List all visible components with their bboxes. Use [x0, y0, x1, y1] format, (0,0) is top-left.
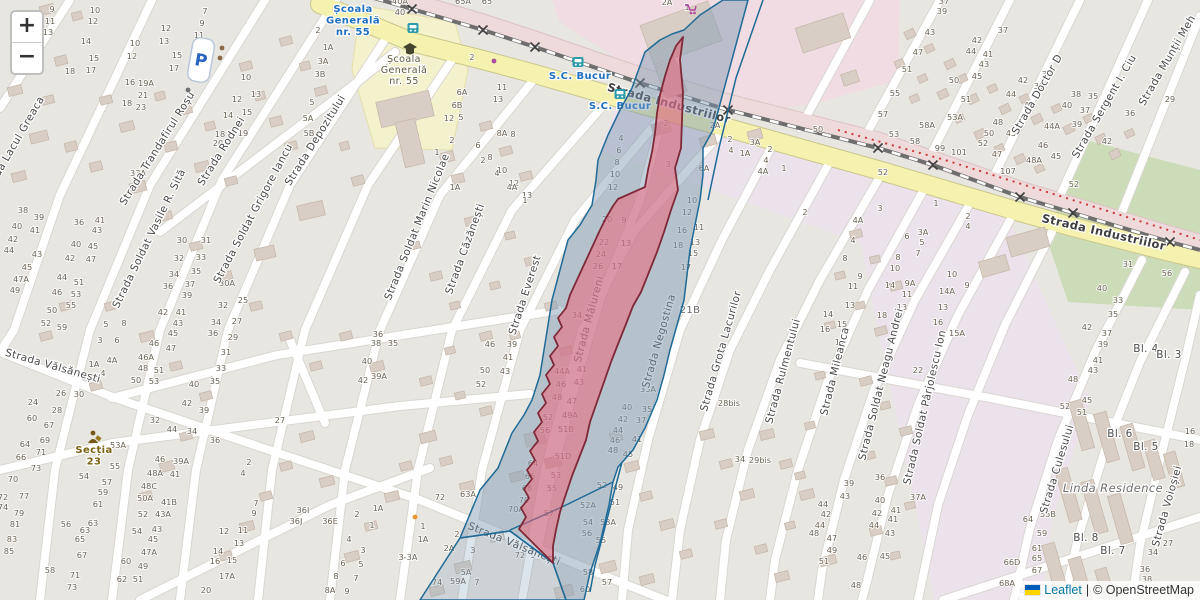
house-number: 23: [136, 102, 146, 112]
house-number: 6: [340, 558, 345, 568]
house-number: 50: [480, 365, 490, 375]
house-number: 2: [965, 211, 970, 221]
house-number: 4A: [853, 215, 864, 225]
house-number: 47A: [13, 274, 29, 284]
house-number: 8A: [325, 585, 336, 595]
poi-dot-icon: [218, 56, 223, 61]
house-number: 4A: [507, 182, 518, 192]
house-number: 67: [44, 420, 54, 430]
house-number: 39: [34, 212, 44, 222]
house-number: 12: [444, 113, 454, 123]
house-number: 33: [216, 363, 226, 373]
house-number: 1: [933, 198, 938, 208]
house-number: 1A: [418, 534, 429, 544]
house-number: 3B: [315, 69, 326, 79]
house-number: 31: [1123, 259, 1133, 269]
house-number: 65: [1032, 553, 1042, 563]
house-number: 59: [1037, 528, 1047, 538]
house-number: 4: [965, 221, 970, 231]
house-number: 58: [910, 136, 920, 146]
house-number: 42: [182, 398, 192, 408]
house-number: 4A: [758, 166, 769, 176]
house-number: 46: [857, 552, 867, 562]
house-number: 19A: [138, 78, 154, 88]
house-number: 44: [869, 520, 879, 530]
house-number: 14: [223, 110, 233, 120]
house-number: 50: [813, 124, 823, 134]
house-number: 36: [1140, 564, 1150, 574]
house-number: 64: [20, 439, 30, 449]
house-number: 40: [189, 379, 199, 389]
house-number: 42: [1082, 322, 1092, 332]
house-number: 15A: [949, 328, 965, 338]
house-number: 57: [602, 577, 612, 587]
map-viewport[interactable]: 9111310121415171810121619A21231833A12131…: [0, 0, 1200, 600]
house-number: 10: [947, 269, 957, 279]
house-number: 43: [500, 366, 510, 376]
house-number: 35: [210, 376, 220, 386]
house-number: 72: [435, 492, 445, 502]
house-number: 3: [877, 203, 882, 213]
house-number: 40: [395, 7, 405, 17]
house-number: 43: [840, 491, 850, 501]
house-number: 7: [915, 248, 920, 258]
house-number: 29: [1165, 94, 1175, 104]
house-number: 28: [52, 405, 62, 415]
house-number: 46: [485, 339, 495, 349]
house-number: 34: [169, 269, 179, 279]
house-number: 2: [354, 509, 359, 519]
house-number: 45: [1082, 395, 1092, 405]
house-number: 52: [1069, 179, 1079, 189]
house-number: 48A: [147, 468, 163, 478]
house-number: 6: [114, 335, 119, 345]
house-number: 53: [889, 129, 899, 139]
house-number: 83: [7, 534, 17, 544]
house-number: 32: [150, 415, 160, 425]
house-number: 42: [158, 307, 168, 317]
house-number: 10: [241, 72, 251, 82]
house-number: 8: [842, 253, 847, 263]
building: [339, 141, 350, 151]
map-label: Bl. 7: [1100, 545, 1125, 557]
house-number: 14: [81, 36, 91, 46]
house-number: 8: [895, 252, 900, 262]
house-number: 40A: [392, 0, 408, 6]
house-number: 44: [167, 424, 177, 434]
osm-link[interactable]: © OpenStreetMap: [1093, 583, 1194, 597]
house-number: 79: [14, 508, 24, 518]
house-number: 99: [935, 143, 945, 153]
house-number: 42: [972, 35, 982, 45]
house-number: 2: [246, 457, 251, 467]
house-number: 52: [476, 379, 486, 389]
house-number: 35: [1108, 309, 1118, 319]
map-label: S.C. Bucur: [549, 71, 611, 82]
zoom-control: + −: [10, 10, 44, 75]
map-label: Linda Residence: [1063, 481, 1163, 495]
house-number: 36I: [297, 505, 310, 515]
house-number: 42: [358, 375, 368, 385]
house-number: 47: [166, 343, 176, 353]
house-number: 3A: [750, 137, 761, 147]
house-number: 28bis: [718, 398, 740, 408]
house-number: 54: [79, 471, 89, 481]
house-number: 34: [735, 454, 745, 464]
leaflet-link[interactable]: Leaflet: [1044, 583, 1082, 597]
house-number: 1: [369, 520, 374, 530]
house-number: 17: [86, 65, 96, 75]
attribution-separator: |: [1086, 583, 1089, 597]
house-number: 39: [182, 290, 192, 300]
house-number: 57: [102, 477, 112, 487]
house-number: 36J: [290, 516, 303, 526]
house-number: 2: [454, 529, 459, 539]
house-number: 11: [238, 525, 248, 535]
map-label: Bl. 6: [1107, 428, 1132, 440]
map-canvas[interactable]: 9111310121415171810121619A21231833A12131…: [0, 0, 1200, 600]
house-number: 15: [227, 555, 237, 565]
house-number: 39A: [173, 456, 189, 466]
house-number: 48: [138, 363, 148, 373]
house-number: 85: [4, 546, 14, 556]
house-number: 8: [510, 129, 515, 139]
house-number: 15: [172, 50, 182, 60]
house-number: 15: [89, 53, 99, 63]
house-number: 16: [820, 324, 830, 334]
house-number: 5: [358, 559, 363, 569]
house-number: 51: [1077, 407, 1087, 417]
house-number: 7: [353, 573, 358, 583]
house-number: 1A: [740, 148, 751, 158]
house-number: 13: [234, 538, 244, 548]
house-number: 81: [10, 519, 20, 529]
house-number: 41B: [161, 497, 177, 507]
attribution-bar: Leaflet|© OpenStreetMap: [1019, 581, 1200, 600]
house-number: 41: [503, 352, 513, 362]
house-number: 63A: [460, 489, 476, 499]
zoom-in-button[interactable]: +: [12, 12, 42, 43]
house-number: 52: [878, 167, 888, 177]
house-number: 36: [208, 328, 218, 338]
house-number: 30: [177, 235, 187, 245]
house-number: 41: [983, 49, 993, 59]
house-number: 107: [1000, 166, 1016, 176]
house-number: 58A: [919, 120, 935, 130]
house-number: 38: [371, 338, 381, 348]
house-number: 27: [1163, 538, 1173, 548]
house-number: 2: [767, 144, 772, 154]
house-number: 52: [1060, 401, 1070, 411]
house-number: 18: [122, 98, 132, 108]
house-number: 2: [727, 134, 732, 144]
house-number: 67: [77, 550, 87, 560]
house-number: 61: [93, 499, 103, 509]
house-number: 46A: [138, 352, 154, 362]
house-number: 13: [43, 27, 53, 37]
house-number: 36: [875, 472, 885, 482]
house-number: 36: [163, 281, 173, 291]
house-number: 9: [964, 280, 969, 290]
house-number: 44: [966, 46, 976, 56]
house-number: 7: [202, 6, 207, 16]
house-number: 48A: [1026, 155, 1042, 165]
house-number: 4: [728, 145, 733, 155]
house-number: 12: [127, 51, 137, 61]
house-number: 29: [228, 332, 238, 342]
house-number: 45: [148, 534, 158, 544]
house-number: 4: [240, 468, 245, 478]
house-number: 74: [0, 502, 8, 512]
house-number: 18: [1184, 439, 1194, 449]
house-number: 37: [1102, 328, 1112, 338]
house-number: 48: [851, 580, 861, 590]
house-number: 40: [1097, 283, 1107, 293]
house-number: 6: [904, 231, 909, 241]
house-number: 2: [802, 207, 807, 217]
house-number: 65: [482, 0, 492, 6]
house-number: 101: [951, 147, 967, 157]
house-number: 50: [131, 375, 141, 385]
house-number: 8: [487, 152, 492, 162]
house-number: 43: [92, 225, 102, 235]
house-number: 34: [1148, 547, 1158, 557]
house-number: 45: [880, 551, 890, 561]
house-number: 53A: [947, 112, 963, 122]
house-number: 64: [1023, 514, 1033, 524]
map-label: Bl. 3: [1156, 349, 1181, 361]
house-number: 41: [888, 514, 898, 524]
house-number: 11: [902, 289, 912, 299]
house-number: 13: [845, 300, 855, 310]
house-number: 47: [827, 533, 837, 543]
house-number: 43: [885, 528, 895, 538]
house-number: 3A: [318, 56, 329, 66]
house-number: 40: [875, 495, 885, 505]
house-number: 43: [32, 249, 42, 259]
house-number: 51: [74, 277, 84, 287]
house-number: 24: [28, 397, 38, 407]
house-number: 10: [90, 5, 100, 15]
house-number: 51: [902, 64, 912, 74]
house-number: 37: [1080, 105, 1090, 115]
house-number: 36E: [322, 516, 338, 526]
house-number: 34: [187, 426, 197, 436]
house-number: 35: [1088, 91, 1098, 101]
house-number: 39: [1072, 119, 1082, 129]
house-number: 1A: [373, 503, 384, 513]
house-number: 1A: [323, 42, 334, 52]
house-number: 2: [469, 52, 474, 62]
house-number: 16: [933, 317, 943, 327]
house-number: 37: [185, 279, 195, 289]
house-number: 68A: [999, 578, 1015, 588]
house-number: 10: [130, 38, 140, 48]
house-number: 6A: [457, 87, 468, 97]
house-number: 8: [333, 571, 338, 581]
house-number: 14A: [939, 286, 955, 296]
house-number: 44: [1006, 89, 1016, 99]
house-number: 1A: [89, 359, 100, 369]
house-number: 3A: [918, 227, 929, 237]
house-number: 32: [218, 300, 228, 310]
house-number: 43: [979, 59, 989, 69]
house-number: 42: [1018, 75, 1028, 85]
house-number: 31: [221, 347, 231, 357]
house-number: 52: [41, 318, 51, 328]
house-number: 46: [149, 338, 159, 348]
house-number: 49: [138, 561, 148, 571]
house-number: 55: [66, 300, 76, 310]
house-number: 56: [61, 519, 71, 529]
house-number: 47: [992, 149, 1002, 159]
house-number: 18: [65, 66, 75, 76]
house-number: 71: [70, 570, 80, 580]
house-number: 39: [844, 478, 854, 488]
house-number: 4: [494, 168, 499, 178]
house-number: 3-3A: [399, 552, 418, 562]
house-number: 30: [74, 389, 84, 399]
house-number: 63: [88, 518, 98, 528]
house-number: 39: [1098, 339, 1108, 349]
house-number: 4: [346, 534, 351, 544]
house-number: 4A: [107, 355, 118, 365]
house-number: 70: [8, 474, 18, 484]
house-number: 58: [45, 565, 55, 575]
house-number: 48: [809, 528, 819, 538]
bus-stop-icon: [408, 23, 419, 33]
house-number: 12: [219, 526, 229, 536]
house-number: 10: [890, 263, 900, 273]
house-number: 59: [57, 322, 67, 332]
house-number: 50: [984, 128, 994, 138]
house-number: 61: [1032, 543, 1042, 553]
house-number: 22: [913, 365, 923, 375]
house-number: 2A: [662, 0, 673, 7]
house-number: 46: [155, 454, 165, 464]
house-number: 71: [36, 447, 46, 457]
house-number: 51: [819, 556, 829, 566]
house-number: 9: [344, 586, 349, 596]
house-number: 38: [18, 205, 28, 215]
house-number: 48: [993, 117, 1003, 127]
house-number: 37: [998, 25, 1008, 35]
house-number: 3: [360, 545, 365, 555]
house-number: 31: [201, 235, 211, 245]
house-number: 49: [10, 285, 20, 295]
house-number: 49: [827, 545, 837, 555]
house-number: 45: [88, 241, 98, 251]
house-number: 21: [138, 90, 148, 100]
house-number: 11: [848, 281, 858, 291]
house-number: 50: [949, 75, 959, 85]
house-number: 43: [152, 524, 162, 534]
house-number: 35: [388, 338, 398, 348]
house-number: 43A: [155, 509, 171, 519]
house-number: 13: [159, 36, 169, 46]
house-number: 12: [232, 94, 242, 104]
house-number: 1A: [450, 182, 461, 192]
house-number: 42: [8, 234, 18, 244]
map-label: Bl. 8: [1073, 532, 1098, 544]
house-number: 44: [57, 272, 67, 282]
house-number: 41: [176, 307, 186, 317]
house-number: 13: [251, 89, 261, 99]
house-number: 46: [52, 287, 62, 297]
house-number: 9A: [905, 278, 916, 288]
house-number: 5: [919, 237, 924, 247]
house-number: 43: [173, 318, 183, 328]
house-number: 48: [1068, 374, 1078, 384]
house-number: 12: [88, 16, 98, 26]
house-number: 40: [362, 356, 372, 366]
house-number: 42: [821, 509, 831, 519]
bus-stop-icon: [573, 57, 584, 67]
house-number: 2: [315, 25, 320, 35]
house-number: 46: [1038, 140, 1048, 150]
house-number: 38: [1071, 89, 1081, 99]
house-number: 36: [74, 217, 84, 227]
house-number: 55: [110, 461, 120, 471]
house-number: 60: [121, 556, 131, 566]
house-number: 3: [97, 335, 102, 345]
poi-dot-icon: [413, 515, 418, 520]
poi-dot-icon: [220, 46, 225, 51]
house-number: 2: [480, 155, 485, 165]
poi-dot-icon: [492, 59, 497, 64]
house-number: 48C: [141, 481, 157, 491]
house-number: 11: [497, 82, 507, 92]
house-number: 27: [275, 415, 285, 425]
house-number: 41: [1093, 355, 1103, 365]
house-number: 14: [885, 280, 895, 290]
house-number: 53: [149, 376, 159, 386]
house-number: 45: [972, 71, 982, 81]
house-number: 73: [31, 463, 41, 473]
map-label: Bl. 4: [1133, 343, 1158, 355]
zoom-out-button[interactable]: −: [12, 43, 42, 73]
house-number: 34: [211, 317, 221, 327]
house-number: 12: [161, 23, 171, 33]
map-label: Bl. 5: [1133, 441, 1158, 453]
house-number: 40: [1062, 100, 1072, 110]
house-number: 8A: [497, 128, 508, 138]
bus-stop-icon: [615, 89, 626, 99]
house-number: 37A: [910, 492, 926, 502]
poi-dot-icon: [186, 88, 191, 93]
house-number: 1: [781, 163, 786, 173]
house-number: 33: [196, 252, 206, 262]
house-number: 18: [877, 310, 887, 320]
house-number: 36: [1125, 108, 1135, 118]
house-number: 14: [823, 309, 833, 319]
house-number: 26: [56, 388, 66, 398]
house-number: 41: [95, 215, 105, 225]
house-number: 17A: [219, 571, 235, 581]
house-number: 51: [154, 365, 164, 375]
house-number: 20: [201, 585, 211, 595]
house-number: 4: [850, 235, 855, 245]
house-number: 52: [978, 138, 988, 148]
house-number: 73: [67, 582, 77, 592]
house-number: 13: [493, 94, 503, 104]
house-number: 25: [238, 295, 248, 305]
house-number: 9: [251, 508, 256, 518]
house-number: 4: [763, 155, 768, 165]
house-number: 27: [232, 316, 242, 326]
house-number: 44: [818, 499, 828, 509]
house-number: 6B: [452, 100, 463, 110]
